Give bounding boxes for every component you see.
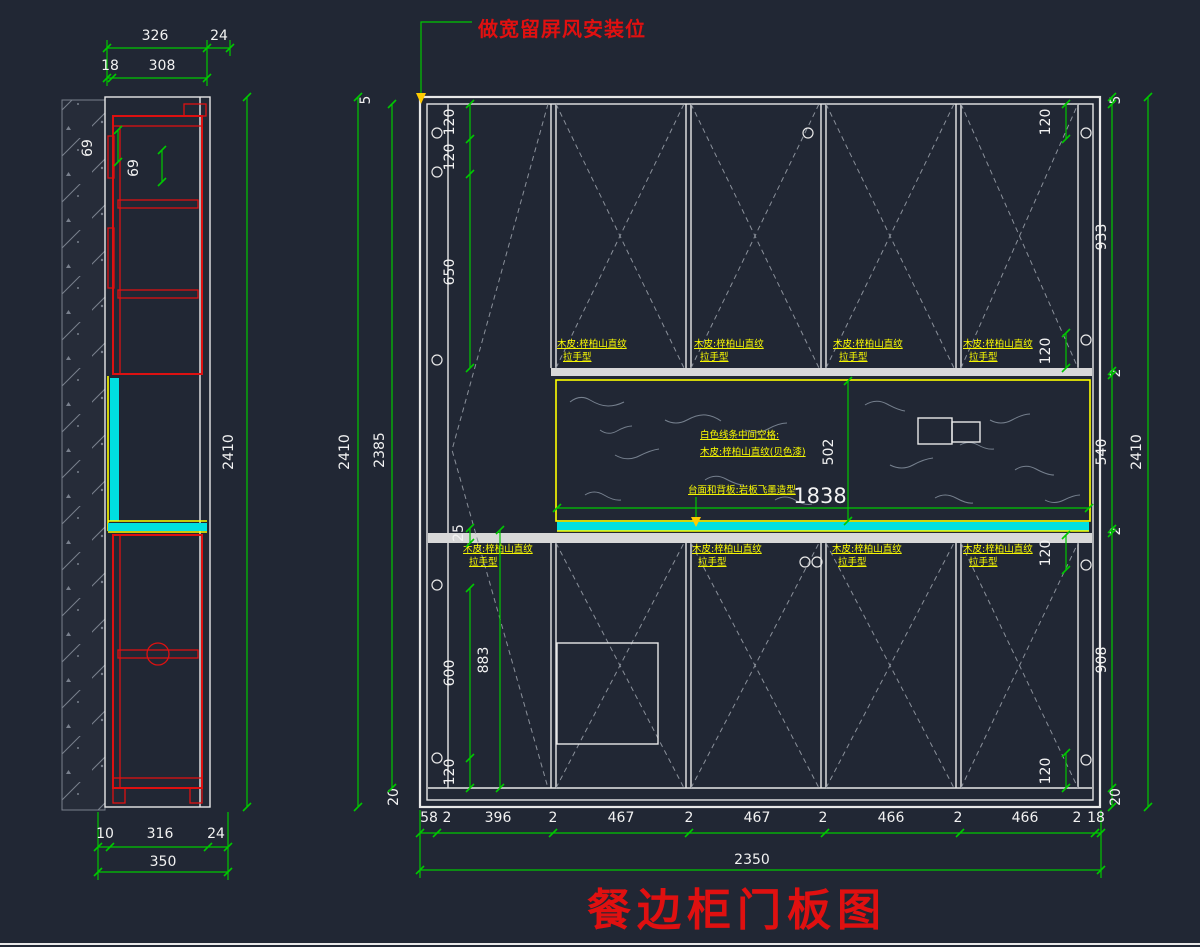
dim-120-a: 120 — [442, 109, 458, 136]
dim-466: 466 — [878, 810, 905, 826]
door-label: 木皮:梓柏山直纹 拉手型 — [963, 338, 1033, 363]
dim-2: 2 — [954, 810, 963, 826]
svg-text:拉手型: 拉手型 — [563, 351, 592, 363]
dim-10: 10 — [96, 826, 114, 842]
cad-drawing-stage: 326 24 18 308 69 69 2410 10 316 24 350 — [0, 0, 1200, 947]
top-note-text: 做宽留屏风安装位 — [477, 17, 646, 41]
dim-396: 396 — [485, 810, 512, 826]
elevation-view: 502 1838 白色线条中间空格: 木皮:梓柏山直纹(贝色漆) 台面和背板:岩… — [337, 17, 1148, 878]
dim-933: 933 — [1094, 224, 1110, 251]
svg-text:拉手型: 拉手型 — [839, 351, 868, 363]
svg-text:木皮:梓柏山直纹: 木皮:梓柏山直纹 — [692, 543, 762, 555]
niche-detail-box-a — [918, 418, 952, 444]
door-label: 木皮:梓柏山直纹 拉手型 — [692, 543, 762, 568]
svg-text:拉手型: 拉手型 — [838, 556, 867, 568]
dim-2410-side: 2410 — [221, 434, 237, 470]
dim-58: 58 — [420, 810, 438, 826]
shelf-band — [551, 368, 1092, 376]
counter-band — [428, 533, 1092, 543]
bottom-dim-chain: 58 2 396 2 467 2 467 2 466 2 466 2 18 23… — [420, 810, 1105, 878]
top-annotation: 做宽留屏风安装位 — [416, 17, 646, 104]
dim-650: 650 — [442, 259, 458, 286]
dim-2: 2 — [685, 810, 694, 826]
dim-25: 25 — [451, 524, 467, 542]
door-label: 木皮:梓柏山直纹 拉手型 — [963, 543, 1033, 568]
dim-883: 883 — [476, 647, 492, 674]
dim-467: 467 — [608, 810, 635, 826]
svg-text:木皮:梓柏山直纹: 木皮:梓柏山直纹 — [694, 338, 764, 350]
side-section-view: 326 24 18 308 69 69 2410 10 316 24 350 — [62, 28, 247, 880]
dim-2: 2 — [819, 810, 828, 826]
side-upper-cabinet-red — [108, 104, 206, 374]
dim-467: 467 — [744, 810, 771, 826]
niche-note-3: 台面和背板:岩板飞墨造型 — [688, 484, 796, 496]
dim-24-bottom: 24 — [207, 826, 225, 842]
dim-24-top: 24 — [210, 28, 228, 44]
cad-drawing-canvas: 326 24 18 308 69 69 2410 10 316 24 350 — [0, 0, 1200, 947]
dim-2: 2 — [443, 810, 452, 826]
drawer-square — [557, 643, 658, 744]
niche-dims: 502 1838 — [557, 381, 1089, 521]
niche-detail-box-b — [952, 422, 980, 442]
niche-note-1: 白色线条中间空格: — [700, 429, 779, 441]
dim-18: 18 — [101, 58, 119, 74]
counter-cyan-strip — [557, 522, 1089, 531]
door-labels-upper: 木皮:梓柏山直纹 拉手型 木皮:梓柏山直纹 拉手型 木皮:梓柏山直纹 拉手型 木… — [557, 338, 1033, 363]
dim-502: 502 — [821, 439, 837, 466]
svg-text:木皮:梓柏山直纹: 木皮:梓柏山直纹 — [963, 338, 1033, 350]
dim-466: 466 — [1012, 810, 1039, 826]
dim-2410-left: 2410 — [337, 434, 353, 470]
leader-arrow-icon — [416, 93, 426, 104]
side-dim-height: 2410 — [221, 97, 247, 807]
svg-text:拉手型: 拉手型 — [969, 556, 998, 568]
dim-120-b: 120 — [442, 144, 458, 171]
door-label: 木皮:梓柏山直纹 拉手型 — [463, 543, 533, 568]
side-dims-top: 326 24 18 308 — [101, 28, 230, 86]
door-label: 木皮:梓柏山直纹 拉手型 — [557, 338, 627, 363]
niche-notes: 白色线条中间空格: 木皮:梓柏山直纹(贝色漆) 台面和背板:岩板飞墨造型 — [688, 429, 806, 527]
dim-350: 350 — [150, 854, 177, 870]
dim-908: 908 — [1094, 647, 1110, 674]
svg-text:木皮:梓柏山直纹: 木皮:梓柏山直纹 — [832, 543, 902, 555]
dim-316: 316 — [147, 826, 174, 842]
svg-text:拉手型: 拉手型 — [698, 556, 727, 568]
svg-text:拉手型: 拉手型 — [469, 556, 498, 568]
dim-326: 326 — [142, 28, 169, 44]
door-label: 木皮:梓柏山直纹 拉手型 — [832, 543, 902, 568]
dim-2385: 2385 — [372, 432, 388, 468]
svg-text:拉手型: 拉手型 — [700, 351, 729, 363]
dim-2: 2 — [1073, 810, 1082, 826]
wall-hatch — [62, 100, 105, 810]
svg-text:拉手型: 拉手型 — [969, 351, 998, 363]
svg-text:木皮:梓柏山直纹: 木皮:梓柏山直纹 — [833, 338, 903, 350]
dim-18: 18 — [1087, 810, 1105, 826]
niche-note-2: 木皮:梓柏山直纹(贝色漆) — [700, 446, 806, 458]
dim-2410-right: 2410 — [1129, 434, 1145, 470]
dim-308: 308 — [149, 58, 176, 74]
door-label: 木皮:梓柏山直纹 拉手型 — [833, 338, 903, 363]
dimension-ticks — [94, 44, 1152, 876]
side-lower-cabinet-red — [113, 535, 202, 803]
dim-120-top-right: 120 — [1038, 109, 1054, 136]
door-swing-dashes — [452, 104, 1078, 788]
dim-2350: 2350 — [734, 852, 770, 868]
dim-69-a: 69 — [80, 139, 96, 157]
svg-text:木皮:梓柏山直纹: 木皮:梓柏山直纹 — [557, 338, 627, 350]
side-niche — [108, 376, 207, 532]
dim-5-left: 5 — [358, 96, 374, 105]
left-dim-chains: 2410 2385 5 20 120 120 650 25 600 120 88… — [337, 96, 500, 807]
svg-text:木皮:梓柏山直纹: 木皮:梓柏山直纹 — [963, 543, 1033, 555]
dim-2: 2 — [549, 810, 558, 826]
side-carcass-outline — [105, 97, 210, 807]
dim-1838: 1838 — [793, 484, 846, 508]
dim-120-bottom-right: 120 — [1038, 758, 1054, 785]
dim-120-mid-lower-right: 120 — [1038, 540, 1054, 567]
dim-600: 600 — [442, 660, 458, 687]
door-mullions — [428, 104, 1092, 788]
dim-69-b: 69 — [126, 159, 142, 177]
door-label: 木皮:梓柏山直纹 拉手型 — [694, 338, 764, 363]
drawing-title: 餐边柜门板图 — [587, 885, 887, 936]
svg-text:木皮:梓柏山直纹: 木皮:梓柏山直纹 — [463, 543, 533, 555]
dim-120-c: 120 — [442, 759, 458, 786]
dim-540: 540 — [1094, 439, 1110, 466]
dim-120-mid-upper-right: 120 — [1038, 338, 1054, 365]
